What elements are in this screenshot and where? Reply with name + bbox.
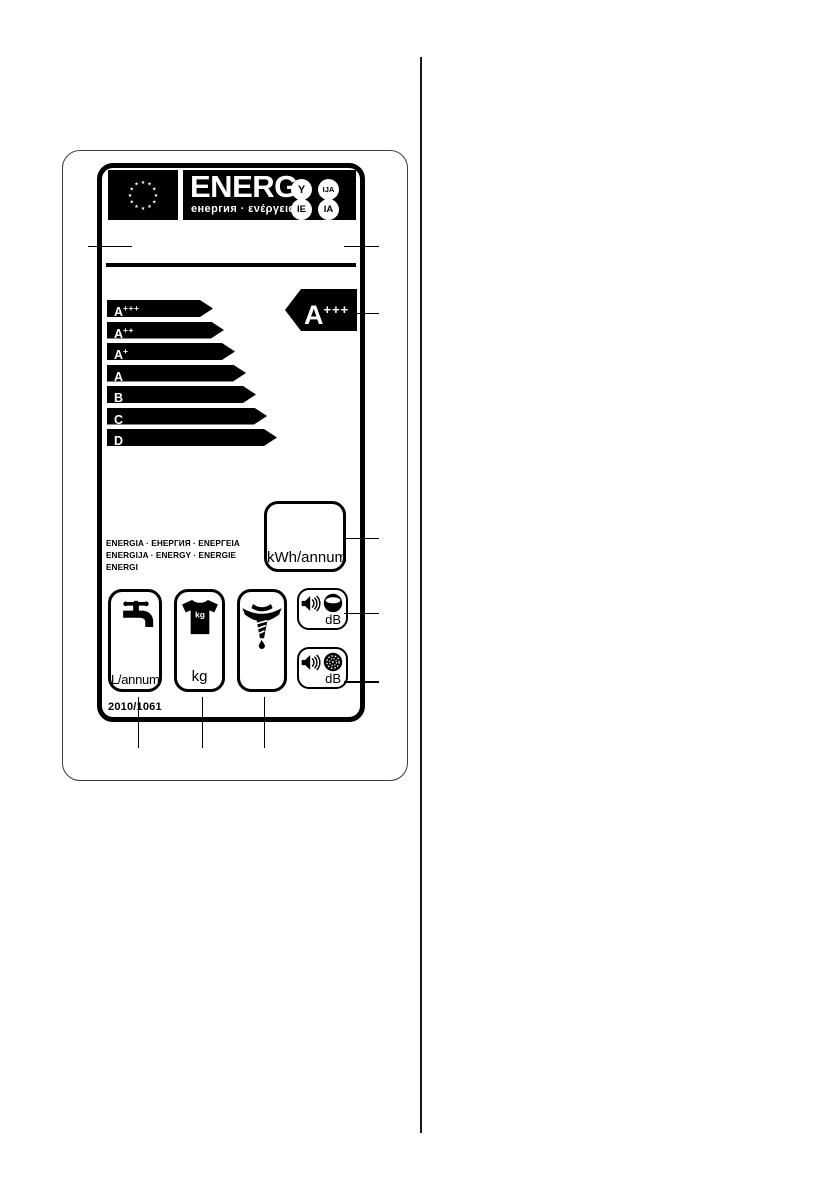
rating-base: A — [304, 300, 324, 330]
energy-unit-text: kWh/annum — [267, 549, 343, 566]
scale-class-text: A — [114, 370, 123, 384]
scale-arrow-a++: A++ — [107, 322, 224, 339]
water-consumption-box: L/annum — [108, 589, 162, 692]
water-unit-text: L/annum — [111, 672, 159, 687]
scale-class-sup: +++ — [123, 303, 139, 313]
scale-class-text: A — [114, 305, 123, 319]
energy-words-line2: ENERGIJA · ENERGY · ENERGIE — [106, 550, 240, 562]
document-page: ★★ ★★ ★★ ★★ ★★ ★★ ENERG енергия · ενέργε… — [0, 0, 839, 1191]
energy-label: ★★ ★★ ★★ ★★ ★★ ★★ ENERG енергия · ενέργε… — [97, 163, 365, 722]
washing-drum-icon — [323, 593, 343, 613]
rating-arrow: A+++ — [285, 289, 357, 331]
noise-washing-box: dB — [297, 588, 348, 630]
page-divider-line — [420, 57, 422, 1133]
svg-text:★: ★ — [152, 199, 157, 205]
capacity-unit-text: kg — [177, 668, 222, 685]
scale-class-text: C — [114, 413, 123, 427]
svg-text:★: ★ — [129, 199, 134, 205]
scale-arrow-d: D — [107, 429, 277, 446]
suffix-y-badge: Y — [291, 179, 312, 200]
noise-washing-unit-text: dB — [325, 612, 341, 627]
tshirt-kg-label: kg — [195, 609, 205, 619]
svg-text:★: ★ — [141, 206, 146, 212]
tshirt-kg-icon: kg — [179, 597, 221, 637]
scale-arrow-c: C — [107, 408, 267, 425]
noise-spinning-unit-text: dB — [325, 671, 341, 686]
scale-arrow-a: A — [107, 365, 246, 382]
energ-banner: ENERG енергия · ενέργεια Y IJA IE IA — [183, 170, 356, 220]
svg-text:★: ★ — [134, 182, 139, 188]
energy-words-block: ENERGIA · ЕНЕРГИЯ · ΕΝΕΡΓΕΙΑ ENERGIJA · … — [106, 538, 240, 573]
regulation-number: 2010/1061 — [108, 701, 162, 713]
spinning-drum-icon — [323, 652, 343, 672]
energy-consumption-box: kWh/annum — [264, 501, 346, 572]
capacity-box: kg kg — [174, 589, 225, 692]
wrung-shirt-icon — [240, 597, 284, 655]
scale-class-text: B — [114, 391, 123, 405]
suffix-ia-badge: IA — [318, 199, 339, 220]
header-divider-line — [106, 263, 356, 267]
scale-arrow-a+++: A+++ — [107, 300, 213, 317]
svg-text:★: ★ — [152, 186, 157, 192]
energ-subtitle-text: енергия · ενέργεια — [191, 203, 296, 215]
speaker-icon — [301, 653, 322, 672]
svg-text:★: ★ — [141, 180, 146, 186]
speaker-icon — [301, 594, 322, 613]
eu-stars-icon: ★★ ★★ ★★ ★★ ★★ ★★ — [108, 170, 178, 220]
scale-arrow-b: B — [107, 386, 256, 403]
noise-spinning-box: dB — [297, 647, 348, 689]
energ-brand-text: ENERG — [190, 170, 298, 204]
scale-class-text: A — [114, 327, 123, 341]
energy-words-line3: ENERGI — [106, 562, 240, 574]
rating-text: A+++ — [304, 289, 349, 336]
scale-class-sup: ++ — [123, 325, 134, 335]
water-tap-icon — [116, 598, 156, 636]
suffix-ie-badge: IE — [291, 199, 312, 220]
svg-text:★: ★ — [128, 193, 133, 199]
svg-text:★: ★ — [154, 193, 159, 199]
rating-sup: +++ — [324, 302, 350, 317]
svg-text:★: ★ — [134, 204, 139, 210]
scale-class-text: D — [114, 434, 123, 448]
eu-flag-icon: ★★ ★★ ★★ ★★ ★★ ★★ — [108, 170, 178, 220]
spin-efficiency-box — [237, 589, 287, 692]
scale-class-sup: + — [123, 346, 128, 356]
energy-words-line1: ENERGIA · ЕНЕРГИЯ · ΕΝΕΡΓΕΙΑ — [106, 538, 240, 550]
scale-class-text: A — [114, 348, 123, 362]
scale-arrow-a+: A+ — [107, 343, 235, 360]
svg-text:★: ★ — [147, 204, 152, 210]
suffix-ija-badge: IJA — [318, 179, 339, 200]
